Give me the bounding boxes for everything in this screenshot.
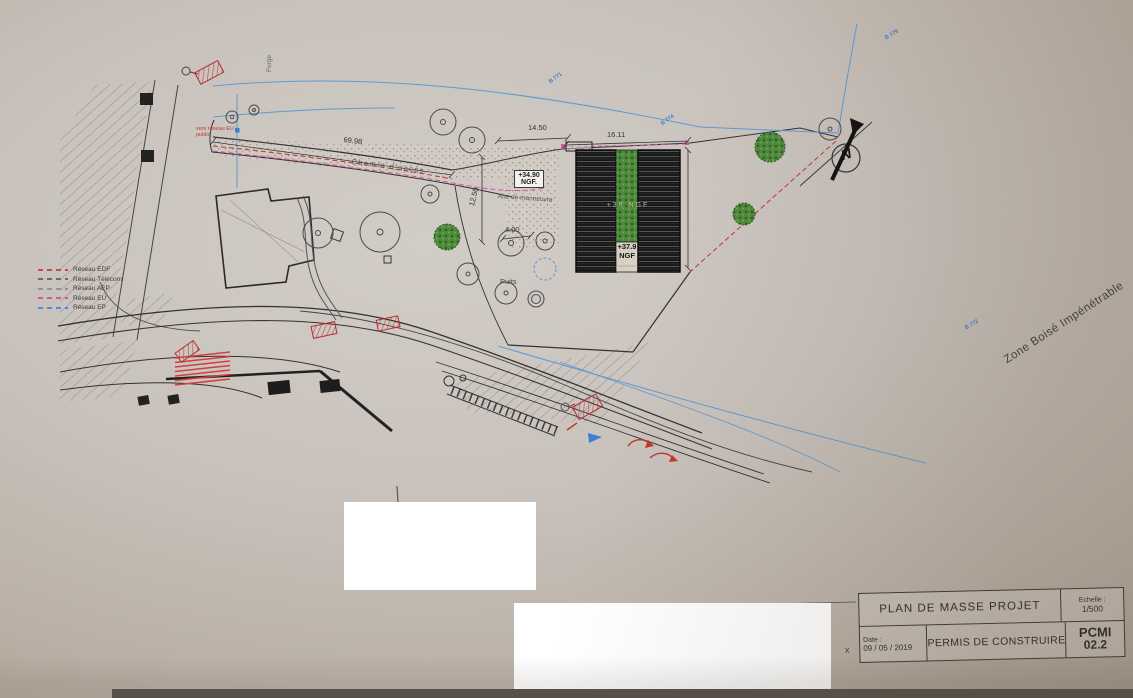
legend-label: Réseau EU [73, 295, 106, 302]
tree-icon [226, 111, 238, 123]
legend-item: Réseau EDF [38, 266, 122, 273]
tree-icon [430, 109, 456, 135]
legend-label: Réseau Télécom [73, 276, 122, 283]
puits-label: Puits [500, 278, 517, 286]
reseau-ep-line-icon [38, 307, 68, 309]
legend-item: Réseau AEP [38, 285, 122, 292]
dimension-16-11: 16.11 [607, 131, 625, 139]
vers-reseau-eu-label: vers réseau EU public [196, 126, 234, 138]
well-icon [528, 291, 544, 307]
tree-icon [421, 185, 439, 203]
dimension-14-50: 14.50 [528, 124, 547, 132]
photo-background-edge [112, 689, 1133, 698]
stray-character: x [845, 646, 850, 656]
niveau-ngf-unit: NGF. [515, 179, 543, 186]
scale-value: 1/500 [1082, 603, 1104, 613]
legend-label: Réseau AEP [73, 285, 110, 292]
reseau-edf-line-icon [38, 269, 68, 271]
redaction-box [344, 502, 536, 590]
legend-label: Réseau EDF [73, 266, 110, 273]
date-cell: Date : 09 / 05 / 2019 [860, 625, 928, 662]
existing-building [216, 189, 391, 320]
shrub-icon [434, 224, 460, 250]
scale-cell: Echelle : 1/500 [1060, 588, 1124, 621]
tree-icon [457, 263, 479, 285]
forge-label: Forge [266, 55, 273, 72]
site-plan-photo: Réseau EDF Réseau Télécom Réseau AEP Rés… [0, 0, 1133, 698]
title-block: PLAN DE MASSE PROJET Echelle : 1/500 Dat… [858, 587, 1126, 663]
faitage-ngf-unit: NGF [619, 251, 635, 260]
faitage-label: +38 NGF [580, 202, 676, 209]
niveau-ngf-box: +34.90 NGF. [514, 170, 544, 188]
hatched-zones [60, 82, 652, 424]
redaction-box [514, 603, 831, 691]
date-value: 09 / 05 / 2019 [863, 642, 924, 652]
legend: Réseau EDF Réseau Télécom Réseau AEP Rés… [38, 266, 122, 311]
faitage-ngf-label: +37.9 NGF [612, 243, 642, 260]
sheet-title: PLAN DE MASSE PROJET [859, 589, 1061, 626]
title-block-row2: Date : 09 / 05 / 2019 PERMIS DE CONSTRUI… [859, 621, 1126, 663]
pcmi-cell: PCMI 02.2 [1065, 621, 1124, 657]
bottom-roads [58, 306, 812, 483]
tree-icon [303, 218, 333, 248]
document-type: PERMIS DE CONSTRUIRE [927, 622, 1066, 660]
legend-item: Réseau Télécom [38, 276, 122, 283]
niveau-ngf-value: +34.90 [515, 172, 543, 179]
reseau-aep-line-icon [38, 288, 68, 290]
pcmi-number: 02.2 [1084, 639, 1108, 653]
shrub-icon [733, 203, 755, 225]
legend-item: Réseau EU [38, 295, 122, 302]
reseau-eu-line-icon [38, 297, 68, 299]
tree-icon [819, 118, 841, 140]
shrub-icon [755, 132, 785, 162]
reseau-telecom-line-icon [38, 278, 68, 280]
legend-item: Réseau EP [38, 304, 122, 311]
legend-label: Réseau EP [73, 304, 106, 311]
dimension-4-00: 4.00 [505, 226, 520, 234]
tree-icon [360, 212, 400, 252]
red-arrows [567, 423, 678, 462]
